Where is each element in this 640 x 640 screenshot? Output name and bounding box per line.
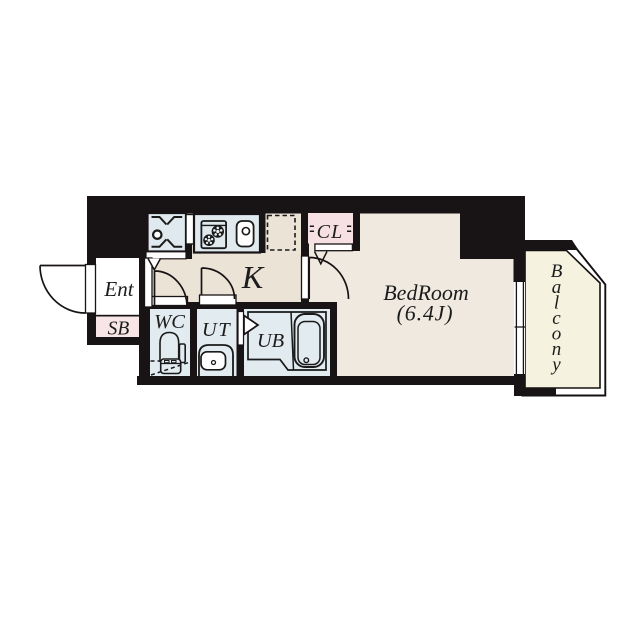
svg-text:UT: UT (202, 319, 231, 341)
svg-text:SB: SB (108, 319, 130, 340)
svg-text:(6.4J): (6.4J) (397, 301, 454, 326)
svg-text:UB: UB (257, 330, 285, 352)
svg-text:CL: CL (317, 221, 344, 243)
svg-text:WC: WC (154, 311, 185, 333)
svg-text:Ent: Ent (103, 277, 134, 301)
svg-text:y: y (550, 355, 561, 376)
svg-text:K: K (241, 259, 265, 295)
